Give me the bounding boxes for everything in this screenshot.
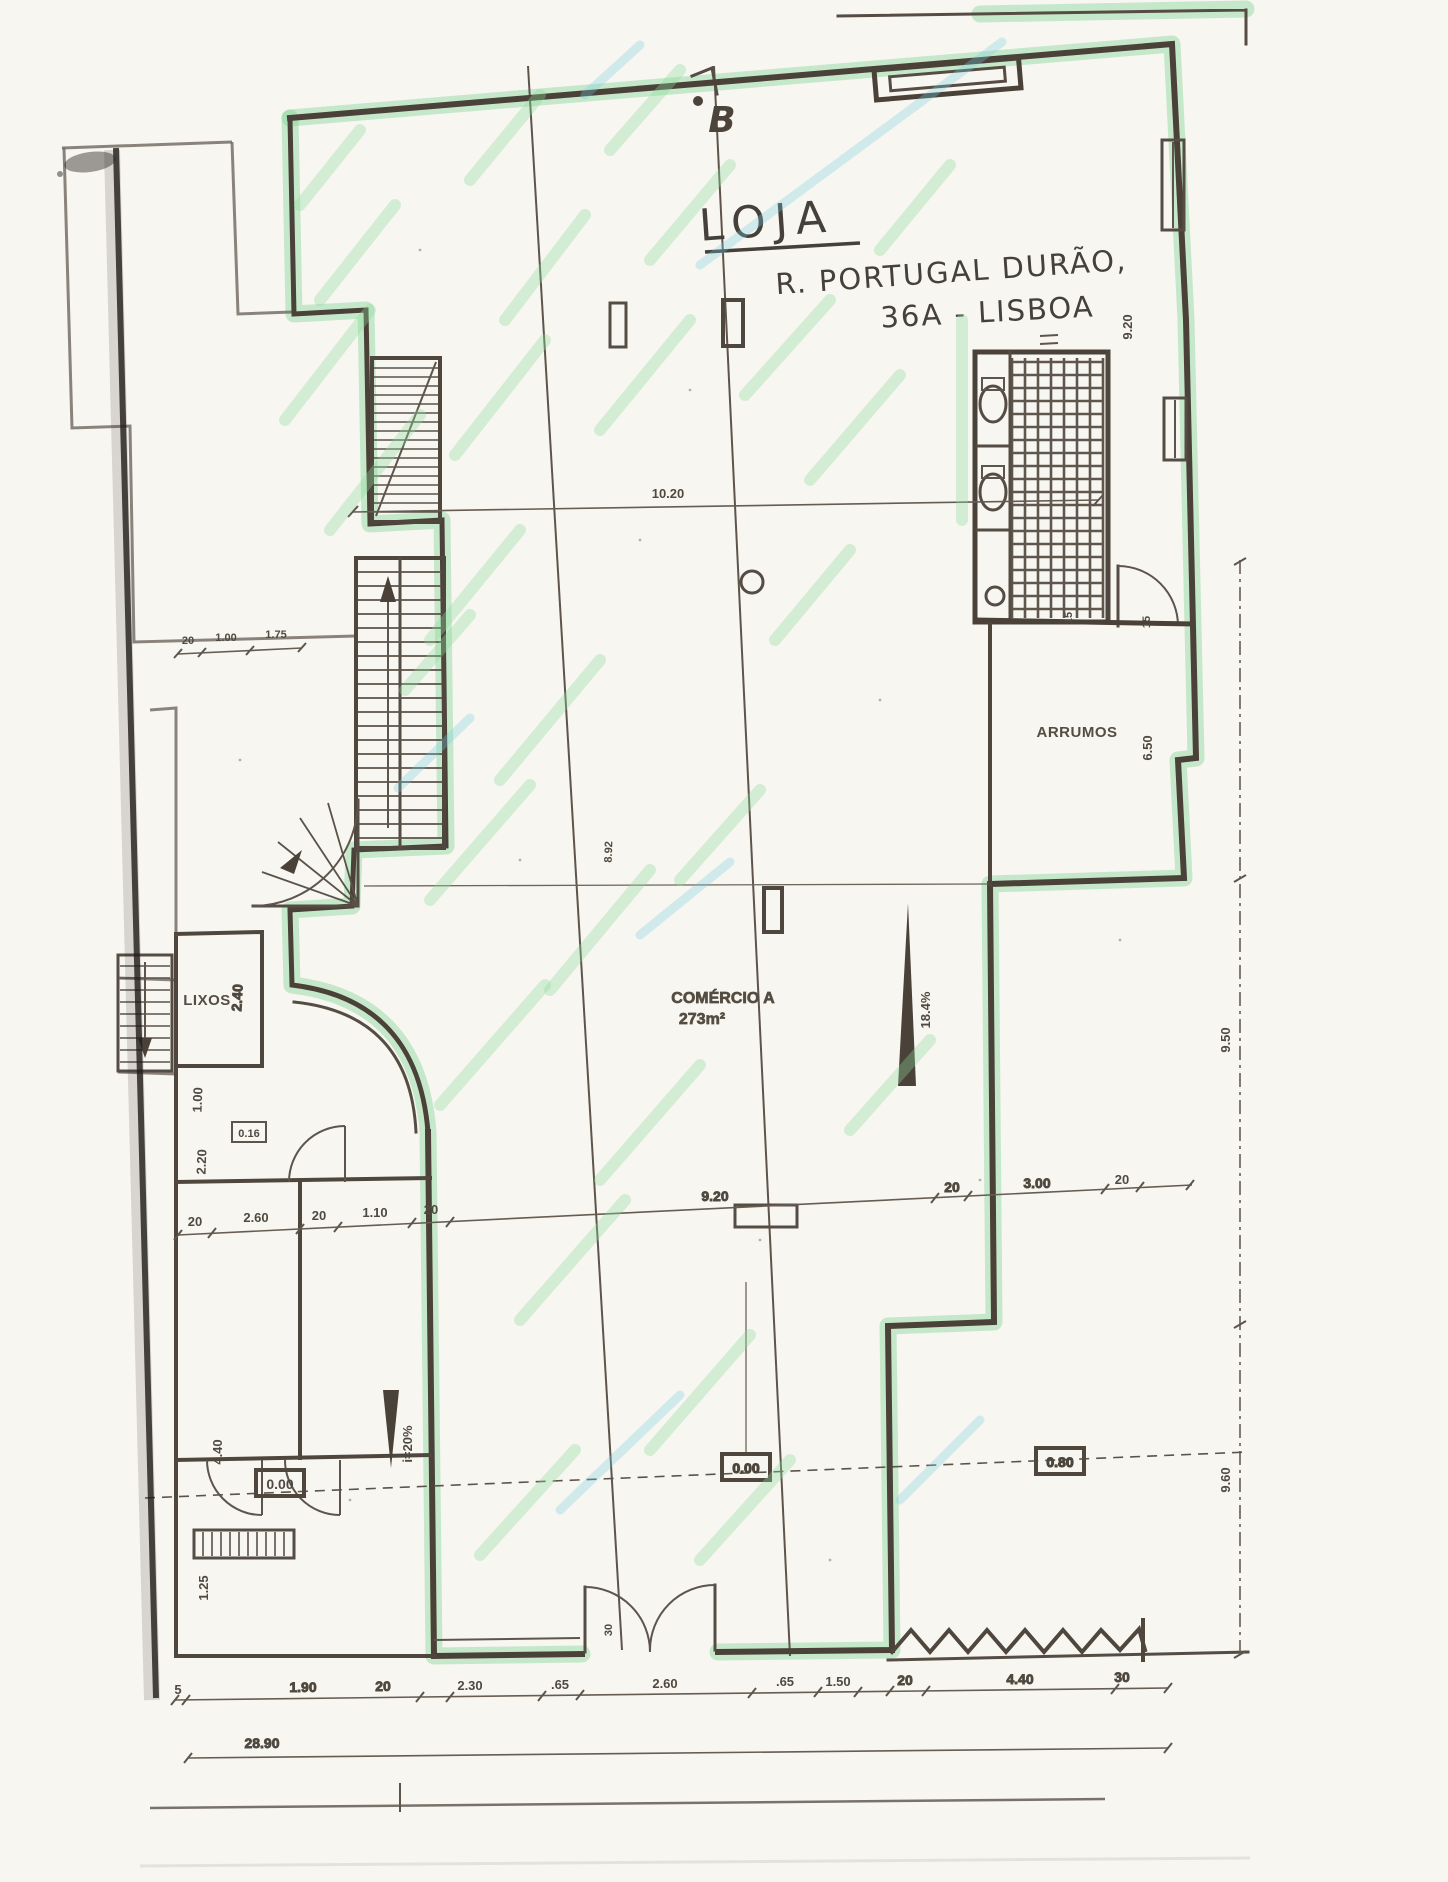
level-interior: 0.00 [732, 1460, 759, 1476]
stair-direction-arrow [380, 576, 396, 602]
wall-marker-value: 0.16 [238, 1128, 259, 1140]
section-arrow-dot [693, 96, 703, 106]
pillar [610, 303, 626, 347]
dim-mid-2: 20 [312, 1208, 326, 1223]
ramp-slope-label: 18.4% [918, 991, 933, 1028]
wc-tile-grid [1012, 358, 1104, 618]
dim-bottom-total: 28.90 [244, 1735, 279, 1751]
neighbour-outline [62, 10, 1246, 1074]
room-label-trash: LIXOS [183, 992, 231, 1009]
floor-box [735, 1205, 797, 1227]
handwritten-title: LOJA [697, 191, 836, 251]
pillar [764, 888, 782, 932]
scanned-floor-plan-page: LOJA R. PORTUGAL DURÃO, 36A - LISBOA B C… [0, 0, 1448, 1882]
dim-bot-3: 2.30 [457, 1678, 482, 1693]
room-label-commerce: COMÉRCIO A [671, 988, 775, 1007]
door-swing [207, 1460, 262, 1515]
dim-bot-4: .65 [551, 1677, 569, 1692]
dim-bot-2: 20 [375, 1678, 391, 1694]
dim-bot-7: 1.50 [825, 1674, 850, 1689]
level-entry: 0.00 [266, 1476, 293, 1492]
column-circle [741, 571, 763, 593]
winder-stair [253, 800, 358, 906]
dim-center-line: 8.92 [603, 841, 616, 863]
winder-arrow [280, 850, 302, 874]
toilet-fixture [980, 386, 1006, 422]
dim-mid-7: 3.00 [1023, 1175, 1050, 1191]
dim-mid-4: 20 [424, 1202, 438, 1217]
room-label-commerce-area: 273m² [679, 1011, 725, 1028]
dim-ul-0: 20 [182, 635, 194, 647]
dim-mid-3: 1.10 [362, 1205, 387, 1220]
dim-wc-door-0: 15 [1063, 612, 1075, 624]
handwritten-address-line2: 36A - LISBOA [880, 289, 1096, 334]
entry-ramp-slope-label: i=20% [400, 1425, 415, 1463]
dim-bot-9: 4.40 [1006, 1671, 1033, 1687]
dim-wc-door-1: 15 [1141, 616, 1153, 628]
dim-left-0: 2.40 [228, 984, 245, 1012]
wc-block [975, 335, 1192, 626]
dim-mid-6: 20 [944, 1179, 960, 1195]
dim-ul-1: 1.00 [215, 632, 236, 644]
level-raised: 0.80 [1046, 1454, 1073, 1470]
room-label-storage: ARRUMOS [1037, 724, 1118, 741]
entry-double-door [585, 1585, 715, 1652]
dimension-lines [145, 495, 1248, 1812]
main-stair [356, 558, 444, 848]
dim-bot-10: 30 [1114, 1669, 1130, 1685]
dim-mid-8: 20 [1115, 1172, 1129, 1187]
dim-top-span: 10.20 [652, 486, 685, 501]
dim-left-4: 1.25 [196, 1575, 211, 1600]
toilet-fixture [980, 474, 1006, 510]
dim-right-0: 9.20 [1120, 314, 1135, 339]
dim-mid-1: 2.60 [243, 1210, 268, 1225]
dim-bot-0: 5 [174, 1682, 181, 1697]
dim-bot-1: 1.90 [289, 1679, 316, 1695]
dim-left-1: 1.00 [190, 1087, 206, 1113]
dim-bot-6: .65 [776, 1674, 794, 1689]
dim-mid-0: 20 [188, 1214, 202, 1229]
zigzag-threshold [888, 1620, 1248, 1660]
dim-left-3: 4.40 [210, 1439, 225, 1464]
dim-bot-5: 2.60 [652, 1676, 677, 1691]
dim-right-3: 9.60 [1218, 1467, 1233, 1492]
dim-mid-5: 9.20 [701, 1188, 728, 1204]
dim-left-2: 2.20 [194, 1149, 210, 1175]
basin-fixture [986, 587, 1004, 605]
dim-ul-2: 1.75 [265, 629, 286, 641]
dim-right-2: 9.50 [1218, 1027, 1233, 1052]
section-letter-b: B [708, 100, 735, 141]
floor-plan-drawing: LOJA R. PORTUGAL DURÃO, 36A - LISBOA B C… [0, 0, 1448, 1882]
bottom-left-stair-strip [194, 1530, 294, 1558]
dim-entry-door: 30 [603, 1624, 615, 1636]
door-swing [289, 1126, 345, 1182]
dim-right-1: 6.50 [1140, 735, 1155, 760]
scan-edge-line [116, 148, 156, 1698]
dim-bot-8: 20 [897, 1672, 913, 1688]
